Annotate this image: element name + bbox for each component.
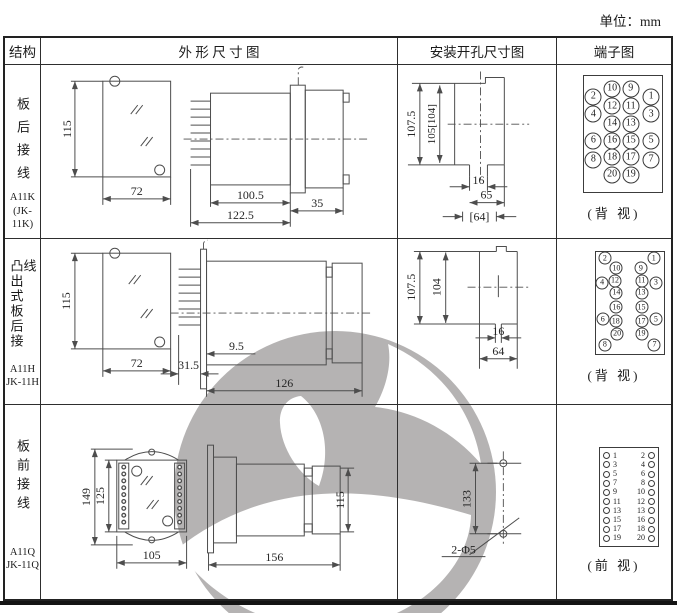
terminal-pin: 9	[622, 80, 639, 97]
terminal-hole	[603, 471, 610, 478]
view-label: (前 视)	[557, 555, 671, 574]
dim-total: 126	[275, 376, 293, 390]
terminal-pin: 12	[604, 98, 621, 115]
install-drawing-row1: 107.5 105[104] 16 65 [64]	[398, 65, 556, 238]
terminal-pin: 15	[622, 132, 639, 149]
dim-front-width: 72	[131, 184, 143, 198]
terminal-pin: 3	[649, 276, 662, 289]
terminal-hole	[648, 517, 655, 524]
structure-name: 凸出式板后接线	[10, 259, 36, 363]
terminal-row: 1718	[600, 525, 658, 534]
dim-rear: 35	[311, 196, 323, 210]
install-drawing-row3: 133 2-Φ5	[398, 405, 556, 598]
terminal-number: 12	[637, 498, 645, 506]
terminal-pin: 11	[622, 98, 639, 115]
model-line2: JK-11Q	[6, 559, 39, 573]
terminal-hole	[648, 535, 655, 542]
terminal-pin: 9	[634, 262, 647, 275]
terminal-pin: 5	[649, 313, 662, 326]
terminal-cell-row2: 2110941211314131615618175201987 (背 视)	[557, 239, 671, 405]
unit-label: 单位：mm	[599, 10, 661, 30]
terminal-hole	[603, 452, 610, 459]
terminal-hole	[648, 452, 655, 459]
header-structure: 结构	[5, 38, 41, 65]
terminal-pin: 5	[643, 132, 660, 149]
dim-slot: 16	[492, 324, 504, 338]
terminal-row: 1920	[600, 534, 658, 543]
dim-w2: [64]	[470, 210, 490, 224]
terminal-number: 15	[613, 516, 621, 524]
dim-front-height: 115	[59, 292, 73, 310]
terminal-hole	[603, 535, 610, 542]
terminal-pin: 16	[610, 301, 623, 314]
terminal-hole	[603, 461, 610, 468]
dim-rear-height: 115	[333, 491, 347, 509]
terminal-pin: 6	[596, 313, 609, 326]
model-line1: A11Q	[6, 546, 39, 560]
terminal-pin: 7	[643, 151, 660, 168]
terminal-number: 10	[637, 488, 645, 496]
dim-total: 156	[265, 550, 283, 564]
terminal-pin: 8	[585, 151, 602, 168]
terminal-pin: 14	[604, 115, 621, 132]
terminal-number: 4	[641, 461, 645, 469]
terminal-number: 13	[613, 507, 621, 515]
terminal-hole	[603, 526, 610, 533]
header-terminal: 端子图	[557, 38, 671, 65]
terminal-box-1: 1092112114314136161558181772019	[583, 75, 663, 193]
terminal-pin: 2	[598, 252, 611, 265]
side-view: 100.5 35 122.5	[184, 67, 370, 227]
spec-table: 结构 外 形 尺 寸 图 安装开孔尺寸图 端子图 板后接线 A11K (JK-1…	[3, 36, 673, 601]
install-cell-row3: 133 2-Φ5	[398, 405, 557, 599]
terminal-number: 13	[637, 507, 645, 515]
terminal-pin: 20	[604, 166, 621, 183]
outline-cell-row2: 115 72 9.5	[41, 239, 398, 405]
outline-cell-row3: 149 125 105 115	[41, 405, 398, 599]
model-line1: A11K	[5, 191, 40, 205]
terminal-hole	[603, 507, 610, 514]
terminal-number: 8	[641, 479, 645, 487]
view-label: (背 视)	[557, 365, 671, 384]
dim-front-width: 105	[143, 548, 161, 562]
outline-cell-row1: 115 72 100.5	[41, 65, 398, 239]
terminal-number: 11	[613, 498, 621, 506]
terminal-pin: 18	[604, 149, 621, 166]
front-view: 149 125 105	[79, 449, 187, 569]
outline-drawing-row3: 149 125 105 115	[41, 405, 397, 598]
terminal-number: 5	[613, 470, 617, 478]
terminal-row: 34	[600, 460, 658, 469]
terminal-pin: 19	[635, 327, 648, 340]
install-drawing-row2: 107.5 104 16 64	[398, 239, 556, 404]
terminal-pin: 13	[635, 286, 648, 299]
terminal-row: 56	[600, 469, 658, 478]
terminal-pin: 8	[598, 338, 611, 351]
terminal-hole	[648, 461, 655, 468]
terminal-pin: 2	[585, 88, 602, 105]
terminal-pin: 16	[604, 132, 621, 149]
terminal-number: 3	[613, 461, 617, 469]
terminal-hole	[603, 517, 610, 524]
terminal-hole	[648, 480, 655, 487]
terminal-pin: 15	[635, 301, 648, 314]
bottom-border-line	[0, 601, 677, 605]
terminal-pin: 1	[647, 252, 660, 265]
terminal-hole	[603, 489, 610, 496]
header-outline: 外 形 尺 寸 图	[41, 38, 398, 65]
dim-w1: 64	[492, 344, 504, 358]
terminal-number: 6	[641, 470, 645, 478]
dim-body: 100.5	[237, 188, 264, 202]
terminal-pin: 14	[610, 286, 623, 299]
dim-outer-h: 107.5	[404, 111, 418, 138]
terminal-row: 78	[600, 479, 658, 488]
dim-slot: 16	[473, 173, 485, 187]
terminal-box-3: 1234567891011121313151617181920	[599, 447, 659, 547]
terminal-pin: 20	[611, 327, 624, 340]
terminal-number: 18	[637, 525, 645, 533]
structure-cell-row3: 板前接线 A11Q JK-11Q	[5, 405, 41, 599]
terminal-pin: 19	[622, 166, 639, 183]
install-cell-row2: 107.5 104 16 64	[398, 239, 557, 405]
model-line1: A11H	[6, 363, 39, 377]
front-view: 115 72	[60, 76, 171, 205]
dim-front-height: 149	[79, 488, 93, 506]
header-install: 安装开孔尺寸图	[398, 38, 557, 65]
terminal-row: 12	[600, 451, 658, 460]
install-cell-row1: 107.5 105[104] 16 65 [64]	[398, 65, 557, 239]
terminal-pin: 7	[648, 338, 661, 351]
terminal-number: 20	[637, 534, 645, 542]
dim-inner-height: 125	[93, 487, 107, 505]
terminal-pin: 6	[585, 132, 602, 149]
terminal-row: 1516	[600, 515, 658, 524]
terminal-pin: 4	[596, 276, 609, 289]
terminal-pin: 18	[609, 315, 622, 328]
terminal-pin: 12	[609, 274, 622, 287]
terminal-pin: 17	[622, 149, 639, 166]
document-page: 单位：mm 结构 外 形 尺 寸 图 安装开孔尺寸图 端子图 板后接线 A11K…	[0, 0, 677, 613]
terminal-number: 9	[613, 488, 617, 496]
side-view: 115 156	[208, 445, 355, 571]
model-codes: A11Q JK-11Q	[6, 546, 39, 573]
model-line2: (JK-11K)	[5, 205, 40, 232]
model-codes: A11H JK-11H	[6, 363, 39, 390]
terminal-pin: 10	[604, 80, 621, 97]
terminal-pin: 17	[635, 315, 648, 328]
terminal-number: 16	[637, 516, 645, 524]
structure-cell-row1: 板后接线 A11K (JK-11K)	[5, 65, 41, 239]
outline-drawing-row2: 115 72 9.5	[41, 239, 397, 404]
terminal-row: 1313	[600, 506, 658, 515]
dim-inner-h: 105[104]	[426, 104, 438, 144]
dim-offset: 9.5	[229, 339, 244, 353]
terminal-hole	[648, 471, 655, 478]
dim-pins: 31.5	[178, 358, 199, 372]
terminal-number: 17	[613, 525, 621, 533]
dim-front-width: 72	[131, 356, 143, 370]
terminal-row: 910	[600, 488, 658, 497]
terminal-pin: 10	[610, 262, 623, 275]
dim-inner-h: 104	[430, 278, 444, 296]
terminal-number: 7	[613, 479, 617, 487]
structure-name: 板前接线	[16, 439, 29, 515]
terminal-hole	[648, 498, 655, 505]
terminal-row: 1112	[600, 497, 658, 506]
terminal-hole	[603, 498, 610, 505]
dim-spacing: 133	[460, 490, 474, 508]
structure-cell-row2: 凸出式板后接线 A11H JK-11H	[5, 239, 41, 405]
terminal-number: 2	[641, 452, 645, 460]
terminal-hole	[648, 526, 655, 533]
model-codes: A11K (JK-11K)	[5, 191, 40, 232]
terminal-pin: 13	[622, 115, 639, 132]
terminal-pin: 11	[635, 274, 648, 287]
terminal-pin: 1	[643, 88, 660, 105]
dim-front-height: 115	[60, 120, 74, 138]
model-line2: JK-11H	[6, 376, 39, 390]
dim-total: 122.5	[227, 208, 254, 222]
terminal-number: 19	[613, 534, 621, 542]
side-view: 9.5 31.5 126	[161, 240, 370, 397]
dim-outer-h: 107.5	[404, 274, 418, 301]
terminal-hole	[648, 489, 655, 496]
terminal-pin: 3	[643, 106, 660, 123]
terminal-pin: 4	[585, 106, 602, 123]
front-view: 115 72	[59, 248, 171, 377]
terminal-hole	[603, 480, 610, 487]
terminal-cell-row1: 1092112114314136161558181772019 (背 视)	[557, 65, 671, 239]
view-label: (背 视)	[557, 203, 671, 222]
dim-holes: 2-Φ5	[451, 543, 476, 557]
terminal-hole	[648, 507, 655, 514]
terminal-number: 1	[613, 452, 617, 460]
terminal-box-2: 2110941211314131615618175201987	[595, 251, 665, 355]
terminal-cell-row3: 1234567891011121313151617181920 (前 视)	[557, 405, 671, 599]
outline-drawing-row1: 115 72 100.5	[41, 65, 397, 238]
dim-w1: 65	[480, 188, 492, 202]
structure-name: 板后接线	[16, 97, 29, 189]
